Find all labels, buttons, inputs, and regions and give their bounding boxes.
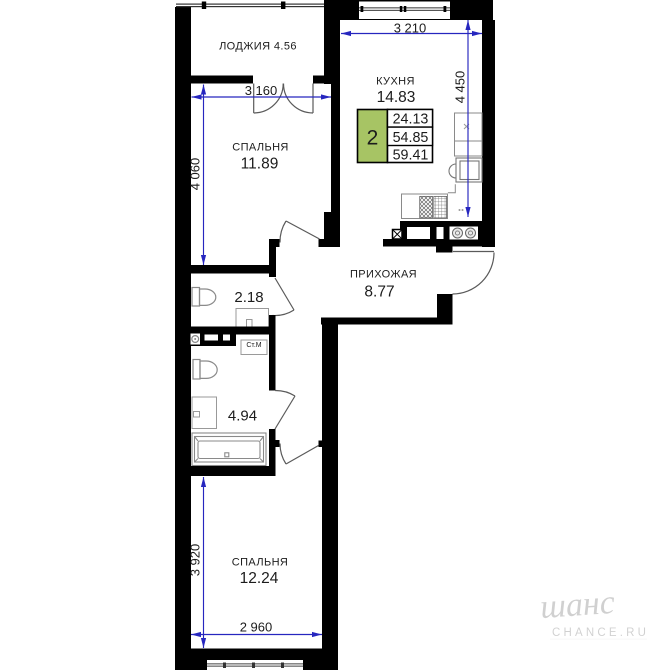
svg-text:12.24: 12.24 xyxy=(240,570,279,587)
svg-text:СПАЛЬНЯ: СПАЛЬНЯ xyxy=(232,142,289,154)
svg-text:24.13: 24.13 xyxy=(393,112,429,128)
svg-text:КУХНЯ: КУХНЯ xyxy=(376,76,415,88)
svg-text:4.94: 4.94 xyxy=(228,408,257,425)
svg-text:59.41: 59.41 xyxy=(393,148,429,164)
svg-text:2: 2 xyxy=(367,127,379,150)
svg-text:СПАЛЬНЯ: СПАЛЬНЯ xyxy=(232,557,289,569)
svg-text:ЛОДЖИЯ 4.56: ЛОДЖИЯ 4.56 xyxy=(219,41,297,53)
svg-text:CHANCE.RU: CHANCE.RU xyxy=(552,627,649,639)
svg-text:11.89: 11.89 xyxy=(241,156,279,173)
svg-text:2.18: 2.18 xyxy=(234,289,263,306)
svg-text:ПРИХОЖАЯ: ПРИХОЖАЯ xyxy=(350,269,417,281)
svg-text:3 160: 3 160 xyxy=(245,83,278,98)
svg-text:3 920: 3 920 xyxy=(188,544,203,577)
svg-text:2 960: 2 960 xyxy=(240,620,273,635)
svg-text:14.83: 14.83 xyxy=(377,89,416,106)
svg-text:Ст.М: Ст.М xyxy=(246,342,261,349)
svg-text:4 450: 4 450 xyxy=(453,71,468,104)
svg-text:8.77: 8.77 xyxy=(364,284,394,301)
svg-text:шанс: шанс xyxy=(539,584,616,626)
svg-text:54.85: 54.85 xyxy=(393,130,429,146)
svg-text:4 060: 4 060 xyxy=(188,158,203,191)
